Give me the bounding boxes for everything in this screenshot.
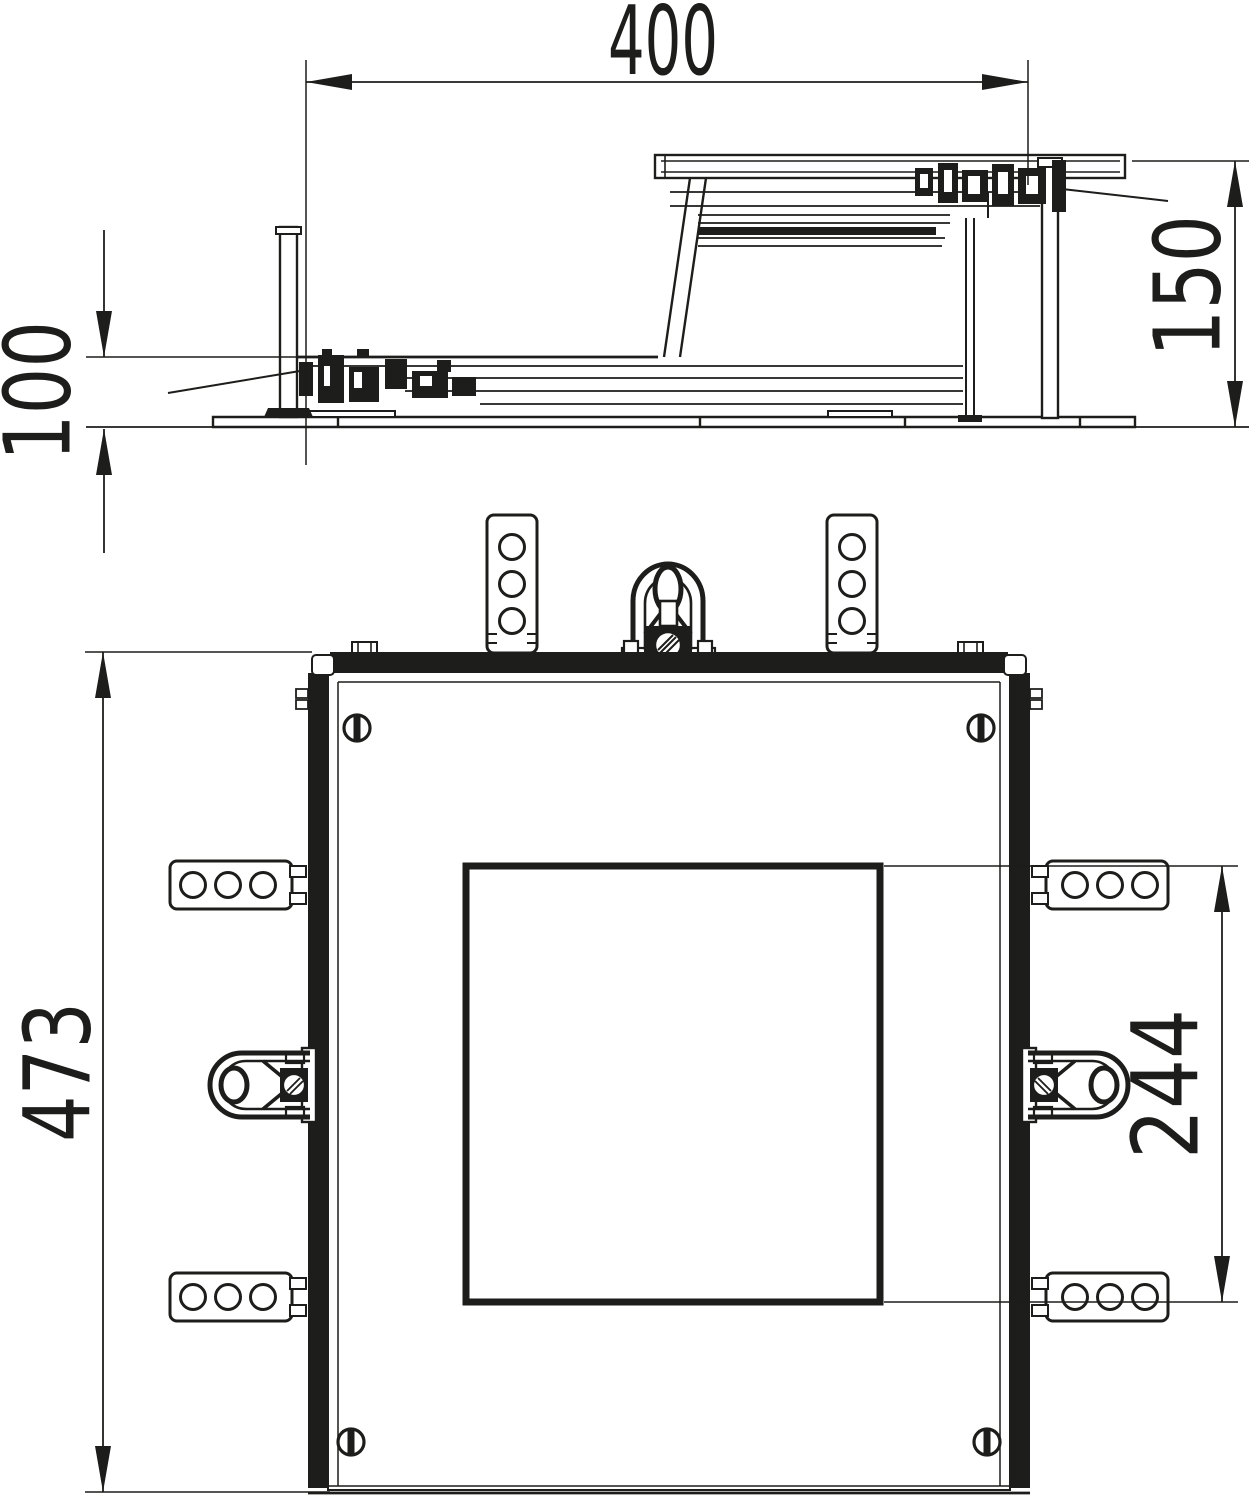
strap-hole bbox=[1063, 873, 1088, 898]
dim-100: 100 bbox=[0, 230, 296, 553]
dim-100-arrow-bottom bbox=[96, 429, 112, 475]
strap-hole bbox=[1098, 873, 1123, 898]
dim-244-arrow-bottom bbox=[1214, 1256, 1230, 1302]
dim-473-arrow-bottom bbox=[95, 1446, 111, 1492]
drawing-canvas: 400 150 100 bbox=[0, 0, 1254, 1500]
dim-244-arrow-top bbox=[1214, 866, 1230, 912]
cover-screw-top-left bbox=[344, 715, 370, 741]
clamp-slot bbox=[221, 1068, 247, 1102]
strap-hole bbox=[500, 609, 525, 634]
side-strap-left-bottom bbox=[170, 1273, 306, 1321]
top-strap-left bbox=[487, 515, 537, 653]
strap-hole bbox=[1098, 1285, 1123, 1310]
strap-hole bbox=[500, 572, 525, 597]
strap-hole bbox=[181, 1285, 206, 1310]
dim-400-arrow-right bbox=[982, 74, 1028, 90]
dim-473-label: 473 bbox=[5, 1002, 112, 1142]
dim-100-label: 100 bbox=[0, 321, 92, 461]
dim-100-arrow-top bbox=[96, 311, 112, 357]
screw-slot bbox=[354, 715, 361, 741]
side-view: 400 150 100 bbox=[0, 0, 1249, 553]
dim-400-label: 400 bbox=[608, 0, 718, 97]
side-strap-left-top bbox=[170, 861, 306, 909]
sloped-left-wall bbox=[664, 178, 706, 357]
inner-divider bbox=[966, 192, 988, 421]
top-bar-screw-right bbox=[958, 642, 983, 653]
inner-cutout bbox=[466, 866, 880, 1302]
screw-tab bbox=[958, 642, 983, 653]
corner-cap-right bbox=[1004, 655, 1026, 675]
dim-150-label: 150 bbox=[1135, 215, 1242, 357]
screw-slot bbox=[978, 715, 985, 741]
strap-hole bbox=[500, 535, 525, 560]
strap-hole bbox=[840, 572, 865, 597]
side-strap-right-top bbox=[1032, 861, 1168, 909]
inner-divider-foot bbox=[958, 415, 982, 422]
center-clamp-top bbox=[622, 564, 715, 658]
cover-screw-top-right bbox=[968, 715, 994, 741]
leader-line-right bbox=[1062, 189, 1168, 201]
corner-cap-left bbox=[312, 655, 334, 675]
cover-screw-bottom-left bbox=[338, 1429, 364, 1455]
dim-150-arrow-top bbox=[1227, 161, 1243, 207]
dim-473-arrow-top bbox=[95, 652, 111, 698]
strap-hole bbox=[216, 1285, 241, 1310]
strap-hole bbox=[1133, 1285, 1158, 1310]
strap-hole bbox=[181, 873, 206, 898]
cover-screw-bottom-right bbox=[974, 1429, 1000, 1455]
clamp-stem bbox=[660, 601, 677, 626]
screw-tab bbox=[352, 642, 377, 653]
side-clamp-left bbox=[210, 1048, 316, 1122]
low-section-rails bbox=[310, 366, 963, 404]
strap-hole bbox=[840, 609, 865, 634]
strap-hole bbox=[1063, 1285, 1088, 1310]
plan-top-bar bbox=[330, 652, 1008, 672]
left-post bbox=[280, 227, 297, 417]
tall-section-thick-rail bbox=[698, 227, 936, 235]
dim-244-label: 244 bbox=[1113, 1009, 1220, 1159]
strap-hole bbox=[1133, 873, 1158, 898]
strap-hole bbox=[251, 873, 276, 898]
dim-400-arrow-left bbox=[306, 74, 352, 90]
screw-slot bbox=[348, 1429, 355, 1455]
strap-hole bbox=[251, 1285, 276, 1310]
screw-slot bbox=[984, 1429, 991, 1455]
plan-view: 473 244 bbox=[5, 515, 1239, 1493]
technical-drawing: 400 150 100 bbox=[0, 0, 1254, 1500]
top-bar-screw-left bbox=[352, 642, 377, 653]
side-strap-right-bottom bbox=[1032, 1273, 1168, 1321]
top-strap-right bbox=[827, 515, 877, 653]
base-plate bbox=[213, 417, 1135, 427]
strap-hole bbox=[840, 535, 865, 560]
dim-150-arrow-bottom bbox=[1227, 381, 1243, 427]
left-post-cap bbox=[276, 227, 301, 234]
strap-hole bbox=[216, 873, 241, 898]
dim-150: 150 bbox=[1132, 161, 1249, 427]
